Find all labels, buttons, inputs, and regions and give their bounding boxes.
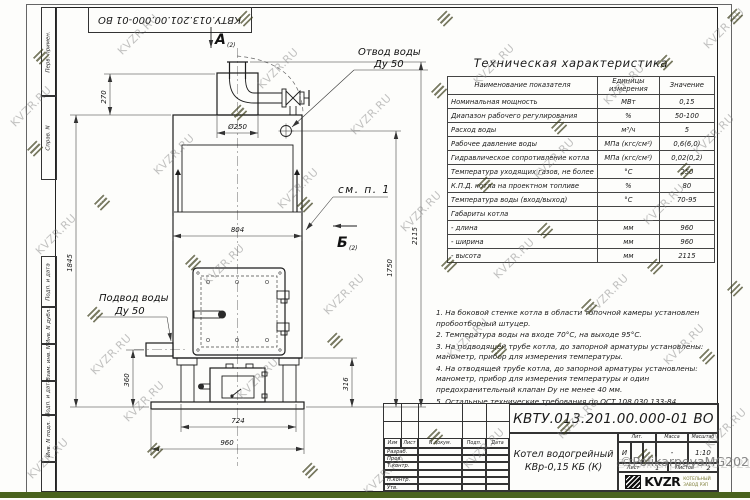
label-inlet: Подвод воды Ду 50 [96,293,171,341]
spec-row: Гидравлическое сопротивление котлаМПа (к… [448,151,715,165]
view-marker-a: А (2) [211,27,236,49]
product-name: Котел водогрейный КВр-0,15 КБ (К) [509,433,618,491]
spec-col-value: Значение [659,77,714,95]
dim-250: Ø250 [227,123,247,131]
door-handle [194,311,220,318]
svg-text:(2): (2) [349,245,358,252]
spec-row: - ширинамм960 [448,235,715,249]
note-item: 3. На подводящей трубе котла, до запорно… [436,342,725,363]
ash-door [222,376,254,398]
drawing-sheet: Перв. примен. Справ. N Подп. и дата Инв.… [0,0,750,500]
label-outlet: Отвод воды Ду 50 [292,47,428,127]
door-hinge-bottom [277,323,289,331]
spec-table-title: Техническая характеристика [445,56,697,70]
svg-text:см. п. 1: см. п. 1 [338,184,391,196]
spec-header-row: Наименование показателя Единицы измерени… [448,77,715,95]
product-name-line2: КВр-0,15 КБ (К) [525,462,602,475]
dim-1750: 1750 [386,259,394,277]
label-see-note: см. п. 1 [306,184,391,230]
scale-label: Масштаб [688,433,718,442]
spec-row: Рабочее давление водыМПа (кгс/см²)0,6(6,… [448,137,715,151]
kvzr-logo-text: KVZR [644,474,680,489]
spec-row: - высотамм2115 [448,249,715,263]
copyright-watermark: ©PolikarpovaMG2021 [620,454,750,469]
svg-text:(2): (2) [227,42,236,49]
kvzr-logo-icon [625,475,641,489]
dim-2115: 2115 [411,227,419,245]
note-item: 4. На отводящей трубе котла, до запорной… [436,364,725,396]
tb-col-podp: Подп. [462,438,486,448]
tb-row-empty [384,470,418,477]
dim-360: 360 [123,373,131,387]
tb-row-tkontr: Т.контр. [384,462,418,469]
tb-col-ndocum: N докум. [418,438,462,448]
title-block: Изм Лист N докум. Подп. Дата Разраб. Про… [383,403,719,492]
extension-lines [70,62,426,454]
furnace-door [193,268,289,355]
svg-text:Ду 50: Ду 50 [373,59,404,70]
spec-row: Габариты котла [448,207,715,221]
outlet-valve-assembly [254,89,309,115]
tb-row-utv: Утв. [384,484,418,491]
mass-label: Масса [656,433,688,442]
spec-col-unit: Единицы измерения [597,77,659,95]
view-marker-b: Б (2) [333,226,358,252]
technical-notes: 1. На боковой стенке котла в области топ… [436,308,725,408]
spec-row: Температура воды (вход/выход)°С70-95 [448,193,715,207]
note-item: 1. На боковой стенке котла в области топ… [436,308,725,329]
svg-text:А: А [214,32,226,48]
dim-960: 960 [220,439,234,447]
product-name-line1: Котел водогрейный [514,449,614,462]
svg-text:Отвод воды: Отвод воды [358,47,421,58]
spec-row: Диапазон рабочего регулирования%50-100 [448,109,715,123]
svg-text:Ду 50: Ду 50 [114,306,145,317]
svg-text:Б: Б [337,235,348,251]
spec-table: Наименование показателя Единицы измерени… [447,76,715,263]
spec-row: Температура уходящих газов, не более°С25… [448,165,715,179]
dim-1845: 1845 [66,254,74,272]
spec-row: Расход водым³/ч5 [448,123,715,137]
spec-row: - длинамм960 [448,221,715,235]
tb-row-nkontr: Н.контр. [384,477,418,484]
tb-row-razrab: Разраб. [384,448,418,455]
svg-text:Подвод воды: Подвод воды [99,293,169,304]
base-section [151,358,304,409]
door-hinge-top [277,291,289,299]
dim-316: 316 [342,377,350,391]
spec-row: К.П.Д. котла на проектном топливе%80 [448,179,715,193]
kvzr-org-name: КОТЕЛЬНЫЙ ЗАВОД РЭП [683,476,710,486]
dimensions: 270 1845 360 Ø250 804 724 960 316 1750 2… [66,62,421,449]
base-plate [151,402,304,409]
spec-row: Номинальная мощностьМВт0,15 [448,95,715,109]
tb-col-data: Дата [486,438,509,448]
organization-cell: KVZR КОТЕЛЬНЫЙ ЗАВОД РЭП [618,472,718,491]
bottom-green-bar [0,492,750,498]
spec-col-name: Наименование показателя [448,77,598,95]
dim-724: 724 [231,417,244,425]
dim-804: 804 [231,226,244,234]
door-swing-arc [237,56,303,112]
tb-col-izm: Изм [384,438,401,448]
dim-270: 270 [100,90,108,104]
lit-label: Лит. [618,433,656,442]
doc-number: КВТУ.013.201.00.000-01 ВО [509,404,718,433]
tb-row-prov: Пров. [384,455,418,462]
tb-col-list: Лист [401,438,418,448]
note-item: 2. Температура воды на входе 70°С, на вы… [436,330,725,341]
